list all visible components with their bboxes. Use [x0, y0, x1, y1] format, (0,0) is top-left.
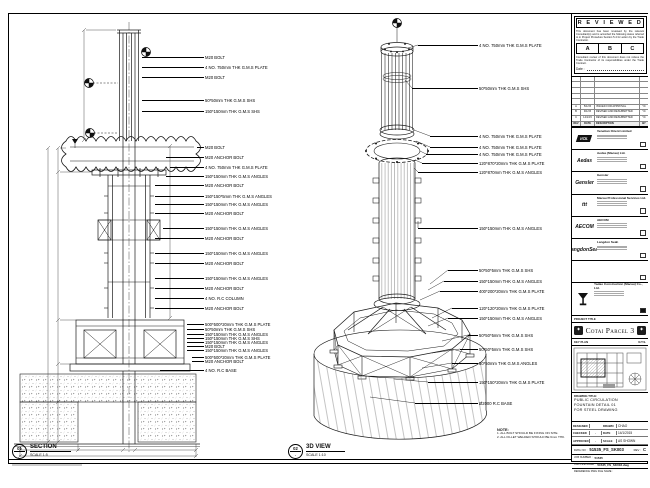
- callout-label: M20 ANCHOR BOLT: [192, 359, 244, 364]
- callout-text: 150*150mm THK G.M.S ANGLES: [204, 226, 268, 231]
- leader-line: [422, 163, 478, 164]
- callout-text: 4 NO. 750mm THK G.M.S PLATE: [204, 165, 268, 170]
- revision-row: REVDATEDESCRIPTIONBY: [572, 122, 648, 127]
- consultant-list: VOLVenetian Orient LimitedAedasAedas (Ma…: [572, 127, 648, 282]
- leader-line: [187, 350, 204, 351]
- consultant-name: AECOM: [597, 219, 648, 222]
- leader-line: [426, 154, 478, 155]
- consultant-name: Macau Professional Services Ltd.: [597, 197, 648, 200]
- revision-letter: C: [643, 447, 646, 452]
- consultant-block: GenslerGensler: [572, 171, 648, 193]
- consultant-logo: LangdonSeah: [572, 239, 597, 260]
- consultant-logo: ttt: [572, 195, 597, 216]
- callout-label: 150*150*20mm THK G.M.S PLATE: [428, 380, 544, 385]
- consultant-name: Venetian Orient Limited: [597, 130, 648, 133]
- drawing-title-line: FOR STEEL DRAWING: [574, 408, 646, 413]
- note-line: 2. ALL FILLET WELDED SHOULD BE 6mm THK.: [497, 436, 569, 440]
- fields-row: APPROVED - SCALE AS SHOWN: [572, 437, 648, 445]
- callout-label: M20 ANCHOR BOLT: [155, 261, 244, 266]
- leader-line: [452, 308, 478, 309]
- consultant-block: AedasAedas (Macau) Ltd.: [572, 149, 648, 171]
- callout-text: 50*50*5mm THK G.M.S SHS: [478, 333, 533, 338]
- callout-label: 50*50mm THK G.M.S ANGLES: [452, 361, 537, 366]
- project-title: Cotai Parcel 3: [586, 326, 635, 335]
- leader-line: [155, 185, 204, 186]
- consultant-block: tttMacau Professional Services Ltd.: [572, 194, 648, 216]
- key-plan: [572, 346, 648, 392]
- cad-file-row: CAD FILE NAME : 51535_FS_SK003.dwg: [572, 461, 648, 468]
- leader-line: [155, 253, 204, 254]
- consultant-name: Aedas (Macau) Ltd.: [597, 152, 648, 155]
- callout-label: M20 ANCHOR BOLT: [155, 286, 244, 291]
- dwg-number: 51535_FS_SK003: [589, 447, 633, 452]
- callout-label: 4 NO. 750mm THK G.M.S PLATE: [170, 165, 268, 170]
- callout-text: 150*150*20mm THK G.M.S PLATE: [478, 380, 544, 385]
- callout-label: 150*150*5mm THK G.M.S ANGLES: [155, 194, 272, 199]
- address-line: [597, 159, 627, 160]
- address-line: [597, 225, 627, 226]
- consultant-block: [572, 260, 648, 282]
- callout-label: 50*50*5mm THK G.M.S SHS: [468, 333, 533, 338]
- callout-label: 150*150mm THK G.M.S ANGLES: [418, 226, 542, 231]
- callout-label: 50*50mm THK G.M.S SHS: [142, 98, 255, 103]
- leader-line: [155, 196, 204, 197]
- margin-note: DO NOT SCALE DRAWING. VERIFY ALL DIMENSI…: [572, 13, 648, 14]
- callout-label: M20 ANCHOR BOLT: [155, 306, 244, 311]
- leader-line: [418, 228, 478, 229]
- leader-line: [187, 334, 204, 335]
- section-scale: SCALE 1:5: [30, 453, 71, 457]
- sheet-border: [8, 13, 648, 464]
- leader-line: [430, 147, 478, 148]
- address-line: [597, 247, 627, 248]
- address-line: [594, 291, 624, 292]
- leader-line: [192, 357, 204, 358]
- status-b: B: [599, 44, 621, 53]
- notes-block: NOTE: 1. ALL BOLT SHOULD BE FIXING ON SI…: [497, 428, 569, 440]
- callout-label: 150*150mm THK G.M.S SHS: [142, 109, 260, 114]
- leader-line: [155, 238, 204, 239]
- callout-text: 50*50mm THK G.M.S ANGLES: [478, 361, 537, 366]
- callout-text: M20 ANCHOR BOLT: [204, 261, 244, 266]
- callout-text: M20 ANCHOR BOLT: [204, 183, 244, 188]
- leader-line: [166, 176, 204, 177]
- leader-line: [160, 370, 204, 371]
- callout-label: 120*870*20mm THK G.M.S PLATE: [422, 161, 544, 166]
- iso-bubble-icon: 02 -: [288, 444, 303, 459]
- callout-label: 4 NO. 750mm THK G.M.S PLATE: [430, 134, 542, 139]
- section-title: SECTION: [30, 444, 71, 452]
- reviewed-title: R E V I E W E D: [576, 18, 644, 28]
- iso-view-label: 02 - 3D VIEW SCALE 1:10: [288, 444, 345, 459]
- review-checkbox: [640, 164, 646, 170]
- contractor-block: Yadao Construction (Macau) Co., Ltd.: [572, 282, 648, 315]
- leader-line: [460, 349, 478, 350]
- callout-text: Ø2000 R.C BASE: [478, 401, 512, 406]
- leader-line: [415, 403, 478, 404]
- job-number-row: JOB NUMBER : 51535: [572, 454, 648, 461]
- leader-line: [155, 308, 204, 309]
- callout-text: 150*150*5mm THK G.M.S ANGLES: [204, 194, 272, 199]
- callout-text: 150*150mm THK G.M.S ANGLES: [204, 348, 268, 353]
- callout-text: M20 ANCHOR BOLT: [204, 211, 244, 216]
- callout-label: 120*870mm THK G.M.S ANGLES: [418, 170, 542, 175]
- callout-text: 150*150mm THK G.M.S ANGLES: [478, 226, 542, 231]
- address-line: [597, 201, 627, 202]
- drawing-sheet: M20 BOLT4 NO. 750mm THK G.M.S PLATEM20 B…: [0, 0, 650, 488]
- callout-text: M20 BOLT: [204, 145, 225, 150]
- consultant-name: Langdon Seah: [597, 241, 648, 244]
- callout-label: M20 ANCHOR BOLT: [155, 236, 244, 241]
- callout-label: 150*150mm THK G.M.S ANGLES: [163, 226, 268, 231]
- leader-line: [187, 342, 204, 343]
- plot-stamp: [12, 464, 82, 466]
- callout-text: M20 ANCHOR BOLT: [204, 286, 244, 291]
- callout-text: 400*200*20mm THK G.M.S PLATE: [478, 289, 544, 294]
- reviewed-date-row: Date :: [576, 67, 644, 71]
- leader-line: [155, 298, 204, 299]
- callout-text: 4 NO. 750mm THK G.M.S PLATE: [478, 145, 542, 150]
- revision-table: A5/1/15ISSUED FOR APPROVALYCB9/1/15REVIS…: [572, 76, 648, 127]
- crest-icon: [637, 326, 646, 335]
- callout-text: M20 ANCHOR BOLT: [204, 155, 244, 160]
- address-line: [597, 246, 627, 247]
- dwg-number-row: DWG NO : 51535_FS_SK003 REV : C: [572, 445, 648, 454]
- review-checkbox: [640, 275, 646, 281]
- iso-title: 3D VIEW: [306, 444, 345, 452]
- project-title-row: Cotai Parcel 3: [572, 323, 648, 338]
- callout-label: 150*150mm THK G.M.S ANGLES: [187, 348, 268, 353]
- callout-text: 50*50*5mm THK G.M.S SHS: [478, 268, 533, 273]
- iso-scale: SCALE 1:10: [306, 453, 345, 457]
- title-block: DO NOT SCALE DRAWING. VERIFY ALL DIMENSI…: [571, 13, 648, 462]
- address-line: [597, 203, 627, 204]
- address-line: [597, 179, 627, 180]
- callout-text: 150*150mm THK G.M.S ANGLES: [204, 202, 268, 207]
- callout-text: 150*150mm THK G.M.S ANGLES: [478, 316, 542, 321]
- leader-line: [192, 361, 204, 362]
- callout-text: 4 NO. 750mm THK G.M.S PLATE: [478, 152, 542, 157]
- address-line: [597, 157, 627, 158]
- address-line: [597, 223, 627, 224]
- leader-line: [142, 57, 204, 58]
- review-checkbox: [640, 253, 646, 259]
- callout-label: 50*50*5mm THK G.M.S SHS: [448, 268, 533, 273]
- leader-line: [142, 77, 204, 78]
- callout-text: 120*870mm THK G.M.S ANGLES: [478, 170, 542, 175]
- sheet-border-inner: [8, 459, 647, 460]
- leader-line: [142, 67, 204, 68]
- leader-line: [155, 263, 204, 264]
- callout-text: M20 BOLT: [204, 75, 225, 80]
- leader-line: [187, 338, 204, 339]
- callout-label: M20 ANCHOR BOLT: [166, 155, 244, 160]
- leader-line: [187, 346, 204, 347]
- leader-line: [428, 382, 478, 383]
- leader-line: [468, 335, 478, 336]
- leader-line: [452, 363, 478, 364]
- reviewed-paragraph: This document has been reviewed by the r…: [576, 30, 644, 42]
- callout-label: 120*120*20mm THK G.M.S PLATE: [452, 306, 544, 311]
- address-line: [594, 293, 624, 294]
- callout-label: 150*150mm THK G.M.S ANGLES: [444, 279, 542, 284]
- leader-line: [187, 324, 204, 325]
- crest-icon: [574, 326, 583, 335]
- callout-label: Ø2000 R.C BASE: [415, 401, 512, 406]
- reviewed-paragraph-2: Consultant review of this document does …: [576, 56, 644, 65]
- callout-label: 150*150mm THK G.M.S ANGLES: [166, 174, 268, 179]
- callout-text: 50*50mm THK G.M.S SHS: [478, 86, 529, 91]
- callout-label: 4 NO. R.C BASE: [160, 368, 237, 373]
- date-line: [587, 67, 644, 71]
- consultant-logo: AECOM: [572, 217, 597, 238]
- leader-line: [448, 270, 478, 271]
- status-row: A B C: [576, 43, 644, 54]
- consultant-block: AECOMAECOM: [572, 216, 648, 238]
- address-line: [597, 183, 627, 184]
- callout-label: 4 NO. 750mm THK G.M.S PLATE: [142, 65, 268, 70]
- callout-text: M20 ANCHOR BOLT: [204, 306, 244, 311]
- callout-text: 150*150mm THK G.M.S SHS: [204, 109, 260, 114]
- callout-label: 150*150mm THK G.M.S ANGLES: [448, 316, 542, 321]
- fields-row: CHECKED - DATE 14/1/2015: [572, 430, 648, 438]
- fields-row: DESIGNED DRAWN CHAO: [572, 422, 648, 430]
- key-plan-map: [573, 347, 647, 391]
- address-line: [597, 181, 627, 182]
- leader-line: [187, 329, 204, 330]
- status-c: C: [622, 44, 643, 53]
- key-plan-bar: KEY PLAN N.T.S.: [572, 338, 648, 346]
- leader-line: [166, 157, 204, 158]
- callout-label: 50*50*5mm THK G.M.S SHS: [460, 347, 533, 352]
- address-line: [597, 249, 627, 250]
- review-checkbox: [640, 186, 646, 192]
- callout-label: 4 NO. R.C COLUMN: [155, 296, 244, 301]
- address-line: [597, 136, 627, 137]
- consultant-logo: VOL: [572, 128, 597, 149]
- callout-text: 150*150mm THK G.M.S ANGLES: [204, 251, 268, 256]
- callout-label: 400*200*20mm THK G.M.S PLATE: [440, 289, 544, 294]
- address-line: [594, 295, 624, 296]
- callout-text: 120*870*20mm THK G.M.S PLATE: [478, 161, 544, 166]
- section-bubble-icon: 01 -: [12, 444, 27, 459]
- callout-label: M20 ANCHOR BOLT: [155, 211, 244, 216]
- contractor-logo-icon: [572, 283, 594, 315]
- leader-line: [448, 318, 478, 319]
- drawing-title-block: DRAWING TITLE: PUBLIC CIRCULATION FOUNTA…: [572, 392, 648, 421]
- callout-label: 4 NO. 750mm THK G.M.S PLATE: [418, 43, 542, 48]
- leader-line: [412, 88, 478, 89]
- consultant-logo: Aedas: [572, 150, 597, 171]
- leader-line: [444, 281, 478, 282]
- callout-text: 150*150mm THK G.M.S ANGLES: [204, 174, 268, 179]
- project-title-bar: PROJECT TITLE: [572, 315, 648, 323]
- callout-label: 4 NO. 750mm THK G.M.S PLATE: [426, 152, 542, 157]
- leader-line: [155, 204, 204, 205]
- callout-label: M20 BOLT: [142, 55, 225, 60]
- consultant-logo: [572, 261, 597, 282]
- callout-text: M20 ANCHOR BOLT: [204, 359, 244, 364]
- leader-line: [155, 278, 204, 279]
- callout-label: 50*50mm THK G.M.S SHS: [412, 86, 529, 91]
- callout-text: M20 ANCHOR BOLT: [204, 236, 244, 241]
- callout-text: 4 NO. 750mm THK G.M.S PLATE: [478, 134, 542, 139]
- address-line: [597, 161, 627, 162]
- leader-line: [418, 45, 478, 46]
- contractor-name: Yadao Construction (Macau) Co., Ltd.: [594, 283, 648, 290]
- contractor-checkbox: [640, 308, 646, 314]
- leader-line: [197, 147, 204, 148]
- callout-label: M20 ANCHOR BOLT: [155, 183, 244, 188]
- leader-line: [142, 111, 204, 112]
- consultant-name: Gensler: [597, 174, 648, 177]
- callout-text: 150*150mm THK G.M.S ANGLES: [478, 279, 542, 284]
- consultant-logo: Gensler: [572, 172, 597, 193]
- callout-text: 4 NO. 750mm THK G.M.S PLATE: [204, 65, 268, 70]
- callout-text: 120*120*20mm THK G.M.S PLATE: [478, 306, 544, 311]
- leader-line: [142, 100, 204, 101]
- leader-line: [155, 288, 204, 289]
- callout-label: 4 NO. 750mm THK G.M.S PLATE: [430, 145, 542, 150]
- callout-text: 50*50mm THK G.M.S SHS: [204, 98, 255, 103]
- callout-text: 4 NO. 750mm THK G.M.S PLATE: [478, 43, 542, 48]
- section-view-label: 01 - SECTION SCALE 1:5: [12, 444, 71, 459]
- leader-line: [155, 213, 204, 214]
- reviewed-stamp: R E V I E W E D This document has been r…: [574, 16, 647, 74]
- callout-label: 150*150mm THK G.M.S ANGLES: [155, 276, 268, 281]
- date-label: Date :: [576, 67, 585, 71]
- consultant-block: LangdonSeahLangdon Seah: [572, 238, 648, 260]
- callout-label: M20 BOLT: [197, 145, 225, 150]
- leader-line: [163, 228, 204, 229]
- address-line: [597, 227, 627, 228]
- review-checkbox: [640, 230, 646, 236]
- venetian-logo-icon: VOL: [576, 135, 593, 142]
- consultant-block: VOLVenetian Orient Limited: [572, 127, 648, 149]
- callout-label: 150*150mm THK G.M.S ANGLES: [155, 202, 268, 207]
- leader-line: [430, 136, 478, 137]
- callout-text: 4 NO. R.C BASE: [204, 368, 237, 373]
- leader-line: [418, 172, 478, 173]
- callout-label: M20 BOLT: [142, 75, 225, 80]
- callout-text: 4 NO. R.C COLUMN: [204, 296, 244, 301]
- address-line: [597, 135, 627, 136]
- fields-table: DESIGNED DRAWN CHAO CHECKED - DATE 14/1/…: [572, 421, 648, 445]
- review-checkbox: [640, 142, 646, 148]
- leader-line: [440, 291, 478, 292]
- leader-line: [170, 167, 204, 168]
- address-line: [597, 205, 627, 206]
- callout-text: 150*150mm THK G.M.S ANGLES: [204, 276, 268, 281]
- status-a: A: [577, 44, 599, 53]
- address-line: [597, 138, 627, 139]
- reference-row: REFERENCE DWG FILE NAME :: [572, 468, 648, 475]
- callout-label: 150*150mm THK G.M.S ANGLES: [155, 251, 268, 256]
- review-checkbox: [640, 208, 646, 214]
- callout-text: M20 BOLT: [204, 55, 225, 60]
- callout-text: 50*50*5mm THK G.M.S SHS: [478, 347, 533, 352]
